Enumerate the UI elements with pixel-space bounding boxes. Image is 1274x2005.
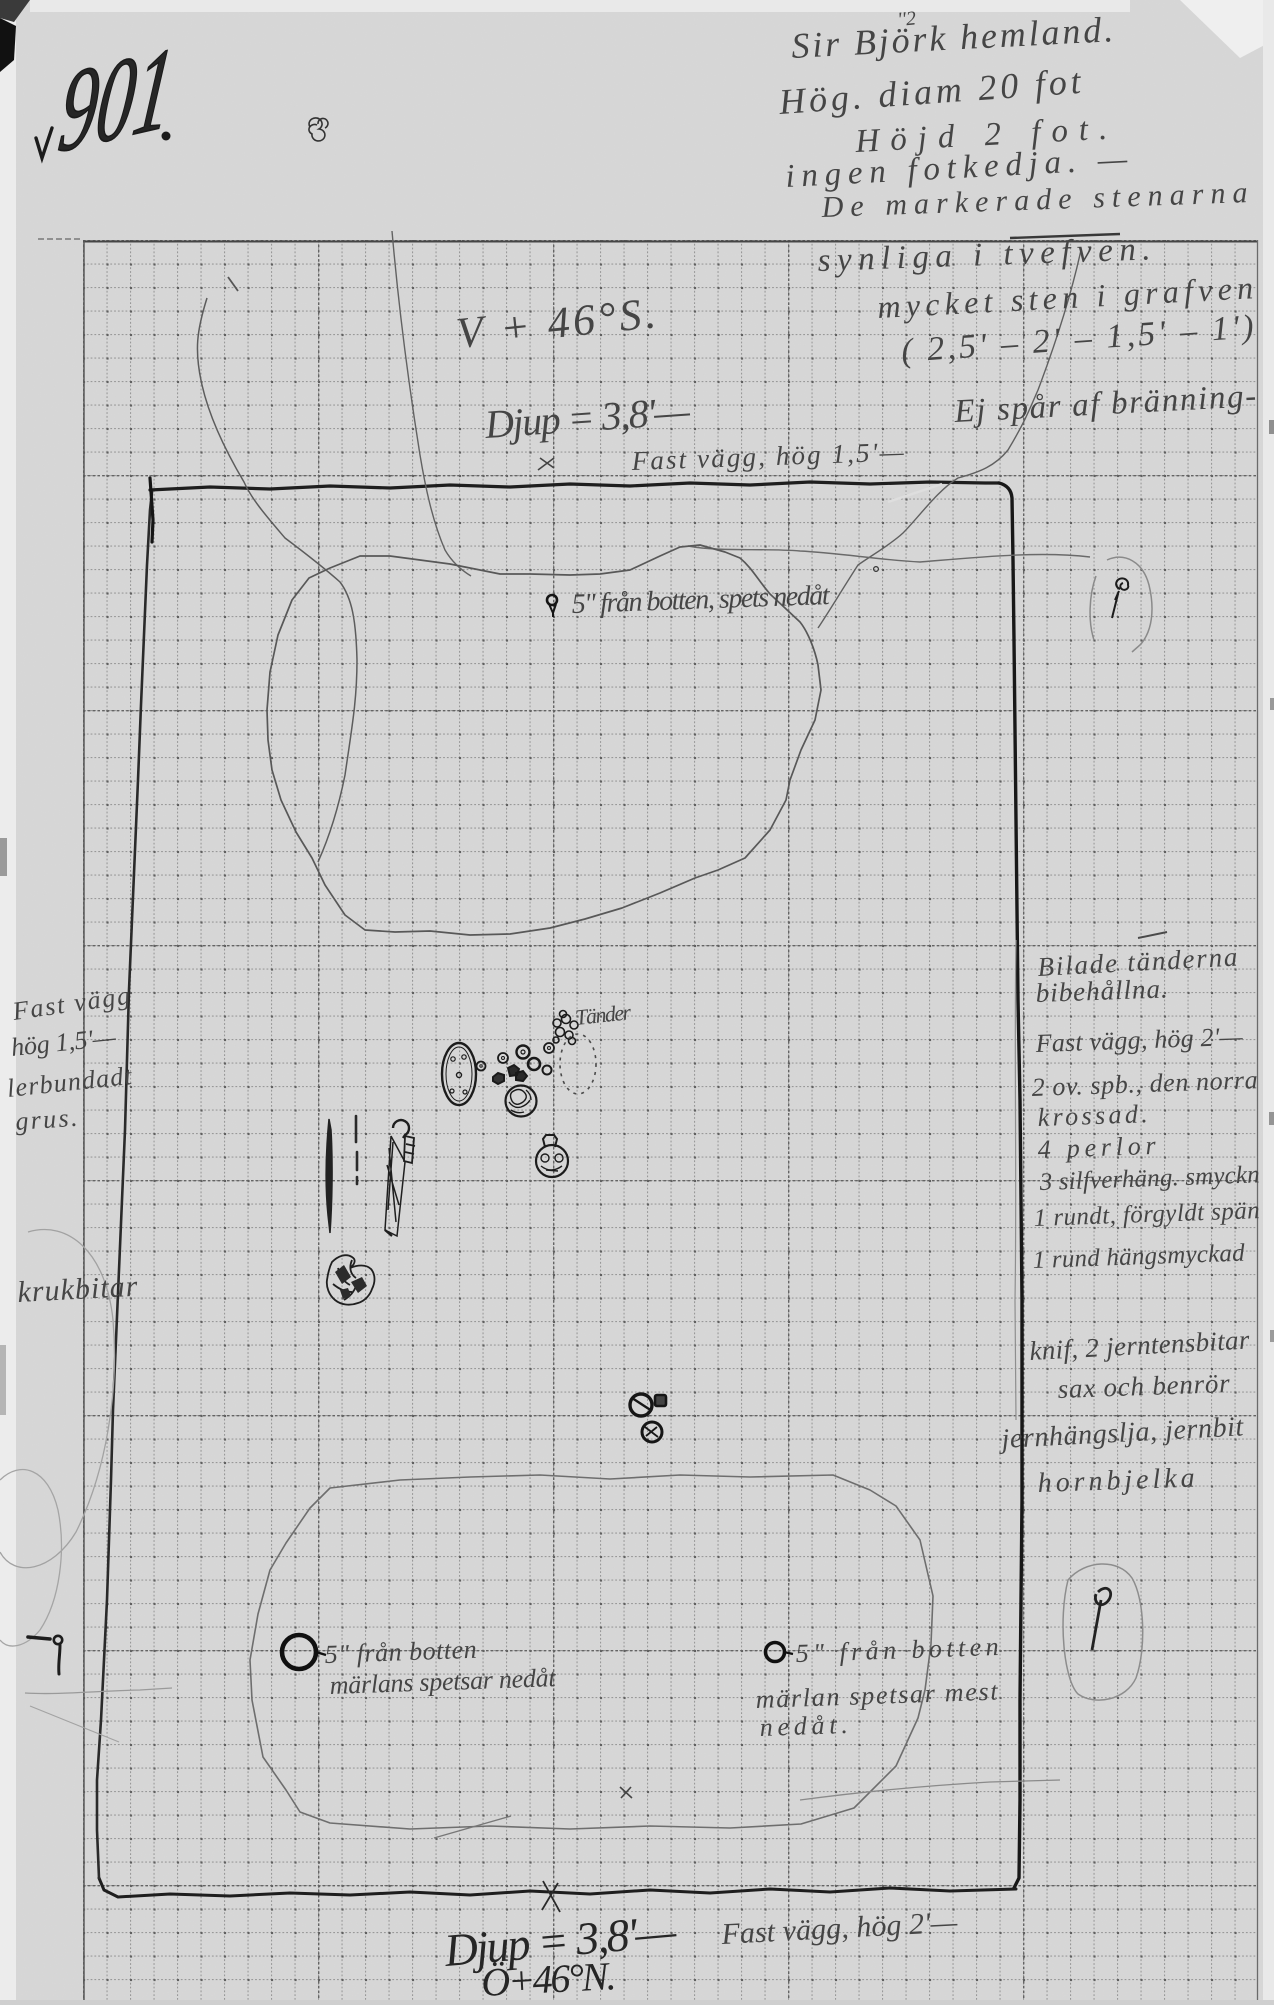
svg-text:bibehållna.: bibehållna. — [1035, 973, 1168, 1008]
svg-text:hornbjelka: hornbjelka — [1037, 1463, 1195, 1499]
svg-text:sax och benrör: sax och benrör — [1057, 1368, 1230, 1404]
svg-text:krukbitar: krukbitar — [17, 1270, 139, 1309]
svg-text:5" från botten: 5" från botten — [324, 1635, 477, 1669]
svg-text:Ö+46°N.: Ö+46°N. — [480, 1953, 617, 2000]
